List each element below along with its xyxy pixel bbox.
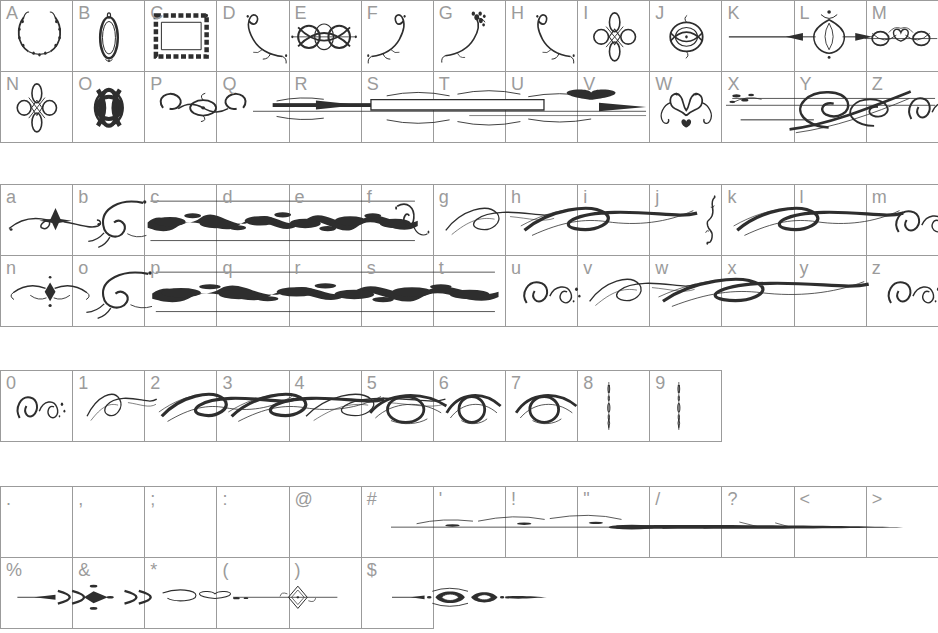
glyph-cell[interactable]: S [362,72,434,143]
glyph-cell-label: b [78,188,88,206]
curl-cluster-ornament [899,77,938,137]
glyph-cell[interactable]: # [362,487,434,558]
glyph-cell-label: t [439,259,444,277]
glyph-cell[interactable]: : [217,487,289,558]
glyph-cell-label: " [583,490,589,508]
glyph-cell[interactable]: < [795,487,867,558]
glyph-cell-label: Q [222,75,236,93]
glyph-cell-label: j [655,188,659,206]
glyph-cell-label: L [800,4,810,22]
glyph-cell[interactable]: C [145,1,217,72]
glyph-cell-label: B [78,4,90,22]
glyph-cell[interactable]: r [290,256,362,327]
glyph-cell-label: 5 [367,374,377,392]
cross-knot-ornament [584,6,645,66]
oval-frame-ornament [83,6,135,66]
glyph-cell-label: @ [295,490,313,508]
round-swash-ornament [443,376,504,436]
glyph-cell[interactable]: G [434,1,506,72]
glyph-cell[interactable]: ? [722,487,794,558]
glyph-cell-label: ) [295,561,301,579]
glyph-cell[interactable]: 8 [578,371,650,442]
glyph-cell-label: q [222,259,232,277]
glyph-cell[interactable]: A [1,1,73,72]
glyph-cell[interactable]: x [722,256,794,327]
glyph-cell[interactable]: o [73,256,145,327]
glyph-cell-label: u [511,259,521,277]
glyph-cell-label: a [6,188,16,206]
swirl-tail-ornament [383,190,434,250]
glyph-cell[interactable]: & [73,558,145,629]
glyph-cell[interactable]: ' [434,487,506,558]
spear-knot-ornament [784,6,874,66]
glyph-cell[interactable]: ) [290,558,362,629]
glyph-cell-label: c [150,188,159,206]
glyph-cell-label: p [150,259,160,277]
glyph-cell[interactable]: q [217,256,289,327]
glyph-cell-label: O [78,75,92,93]
glyph-cell[interactable]: 1 [73,371,145,442]
glyph-cell-label: # [367,490,377,508]
glyph-cell[interactable]: p [145,256,217,327]
glyph-cell[interactable]: " [578,487,650,558]
glyph-cell[interactable]: a [1,185,73,256]
glyph-cell[interactable]: Q [217,72,289,143]
glyph-cell-label: R [295,75,308,93]
glyph-cell-label: z [872,259,881,277]
glyph-cell[interactable]: , [73,487,145,558]
lowercase-row-1: abcdefghijklm [0,184,938,256]
glyph-cell[interactable]: . [1,487,73,558]
glyph-cell-label: D [222,4,235,22]
glyph-cell[interactable]: E [290,1,362,72]
glyph-cell[interactable]: @ [290,487,362,558]
glyph-cell[interactable]: 3 [217,371,289,442]
glyph-cell[interactable]: n [1,256,73,327]
glyph-cell[interactable]: ! [506,487,578,558]
glyph-cell-label: k [727,188,736,206]
glyph-cell-label: 4 [295,374,305,392]
glyph-cell-label: Y [800,75,812,93]
glyph-cell[interactable]: 9 [650,371,722,442]
lowercase-section: abcdefghijklmnopqrstuvwxyz [0,184,938,327]
glyph-cell[interactable]: Y [795,72,867,143]
glyph-cell[interactable]: $ [362,558,434,629]
glyph-cell-label: . [6,490,11,508]
glyph-cell-label: n [6,259,16,277]
glyph-cell-label: ? [727,490,737,508]
glyph-cell[interactable]: H [506,1,578,72]
glyph-cell-label: 8 [583,374,593,392]
glyph-cell-label: r [295,259,301,277]
glyph-cell-label: * [150,561,157,579]
glyph-cell[interactable]: J [650,1,722,72]
glyph-cell-label: N [6,75,19,93]
glyph-cell[interactable]: 6 [434,371,506,442]
punctuation-row-2: %&*()$ [0,558,434,629]
round-swash-ornament [512,376,581,436]
glyph-cell[interactable]: X [722,72,794,143]
glyph-cell-label: T [439,75,450,93]
glyph-cell-label: h [511,188,521,206]
glyph-cell-label: ! [511,490,516,508]
glyph-cell-label: 0 [6,374,16,392]
lowercase-row-2: nopqrstuvwxyz [0,256,938,327]
glyph-cell[interactable]: h [506,185,578,256]
glyph-cell-label: s [367,259,376,277]
glyph-cell[interactable]: f [362,185,434,256]
glyph-cell[interactable]: V [578,72,650,143]
glyph-cell[interactable]: b [73,185,145,256]
mini-stack-ornament [668,376,690,436]
glyph-cell[interactable]: w [650,256,722,327]
glyph-cell-label: : [222,490,227,508]
glyph-map: ABCDEFGHIJKLMNOPQRSTUVWXYZabcdefghijklmn… [0,0,938,633]
glyph-cell[interactable]: P [145,72,217,143]
glyph-cell[interactable]: k [722,185,794,256]
glyph-cell-label: V [583,75,595,93]
glyph-cell-label: 6 [439,374,449,392]
curl-cluster-ornament [885,190,938,250]
glyph-cell-label: y [800,259,809,277]
glyph-cell[interactable]: O [73,72,145,143]
curl-cluster-ornament [878,261,938,321]
glyph-cell[interactable]: T [434,72,506,143]
glyph-cell-label: M [872,4,887,22]
glyph-cell[interactable]: ( [217,558,289,629]
glyph-cell[interactable]: * [145,558,217,629]
mini-stack-ornament [598,376,620,436]
glyph-cell[interactable]: K [722,1,794,72]
glyph-cell[interactable]: F [362,1,434,72]
glyph-cell[interactable]: Z [867,72,938,143]
glyph-cell-label: 1 [78,374,88,392]
glyph-cell-label: I [583,4,588,22]
glyph-cell[interactable]: c [145,185,217,256]
glyph-cell[interactable]: ; [145,487,217,558]
glyph-cell-label: ; [150,490,155,508]
glyph-cell[interactable]: 0 [1,371,73,442]
glyph-cell-label: A [6,4,18,22]
glyph-cell-label: i [583,188,587,206]
glyph-cell-label: m [872,188,887,206]
glyph-cell[interactable]: N [1,72,73,143]
glyph-cell[interactable]: 4 [290,371,362,442]
curl-cluster-ornament [8,376,69,436]
glyph-cell-label: F [367,4,378,22]
glyph-cell[interactable]: i [578,185,650,256]
glyph-cell-label: w [655,259,668,277]
glyph-cell-label: l [800,188,804,206]
glyph-cell[interactable]: g [434,185,506,256]
glyph-cell-label: X [727,75,739,93]
glyph-cell[interactable]: % [1,558,73,629]
glyph-cell-label: 3 [222,374,232,392]
glyph-cell-label: K [727,4,739,22]
glyph-cell-label: W [655,75,672,93]
glyph-cell-label: C [150,4,163,22]
glyph-cell[interactable]: 5 [362,371,434,442]
uppercase-section: ABCDEFGHIJKLMNOPQRSTUVWXYZ [0,0,938,143]
glyph-cell-label: 2 [150,374,160,392]
glyph-cell[interactable]: B [73,1,145,72]
glyph-cell[interactable]: > [867,487,938,558]
curl-cluster-ornament [513,261,585,321]
glyph-cell-label: % [6,561,22,579]
glyph-cell[interactable]: u [506,256,578,327]
glyph-cell-label: P [150,75,162,93]
glyph-cell-label: ( [222,561,228,579]
glyph-cell[interactable]: U [506,72,578,143]
glyph-cell[interactable]: W [650,72,722,143]
glyph-cell-label: ' [439,490,442,508]
glyph-cell[interactable]: R [290,72,362,143]
digits-section: 0123456789 [0,370,722,442]
glyph-cell[interactable]: z [867,256,938,327]
glyph-cell-label: H [511,4,524,22]
glyph-cell[interactable]: D [217,1,289,72]
glyph-cell-label: $ [367,561,377,579]
glyph-cell-label: x [727,259,736,277]
glyph-cell[interactable]: d [217,185,289,256]
glyph-cell-label: Z [872,75,883,93]
glyph-cell[interactable]: j [650,185,722,256]
glyph-cell[interactable]: s [362,256,434,327]
glyph-cell[interactable]: L [795,1,867,72]
glyph-cell[interactable]: 7 [506,371,578,442]
glyph-cell-label: 9 [655,374,665,392]
glyph-cell-label: f [367,188,372,206]
glyph-cell-label: , [78,490,83,508]
glyph-cell[interactable]: v [578,256,650,327]
glyph-cell-label: & [78,561,90,579]
glyph-cell[interactable]: t [434,256,506,327]
spear-divider-ornament [392,563,547,623]
glyph-cell-label: o [78,259,88,277]
punctuation-section: .,;:@#'!"/?<>%&*()$ [0,486,938,629]
digits-row-1: 0123456789 [0,370,722,442]
glyph-cell-label: G [439,4,453,22]
glyph-cell[interactable]: / [650,487,722,558]
glyph-cell-label: E [295,4,307,22]
glyph-cell-label: U [511,75,524,93]
glyph-cell-label: / [655,490,660,508]
glyph-cell[interactable]: M [867,1,938,72]
glyph-cell[interactable]: e [290,185,362,256]
glyph-cell-label: d [222,188,232,206]
glyph-cell[interactable]: m [867,185,938,256]
glyph-cell-label: 7 [511,374,521,392]
glyph-cell[interactable]: l [795,185,867,256]
glyph-cell[interactable]: I [578,1,650,72]
glyph-cell-label: > [872,490,883,508]
glyph-cell[interactable]: 2 [145,371,217,442]
glyph-cell-label: g [439,188,449,206]
glyph-cell-label: v [583,259,592,277]
glyph-cell[interactable]: y [795,256,867,327]
glyph-cell-label: e [295,188,305,206]
glyph-cell-label: S [367,75,379,93]
punctuation-row-1: .,;:@#'!"/?<> [0,486,938,558]
glyph-cell-label: J [655,4,664,22]
glyph-cell-label: < [800,490,811,508]
uppercase-row-2: NOPQRSTUVWXYZ [0,72,938,143]
uppercase-row-1: ABCDEFGHIJKLM [0,0,938,72]
